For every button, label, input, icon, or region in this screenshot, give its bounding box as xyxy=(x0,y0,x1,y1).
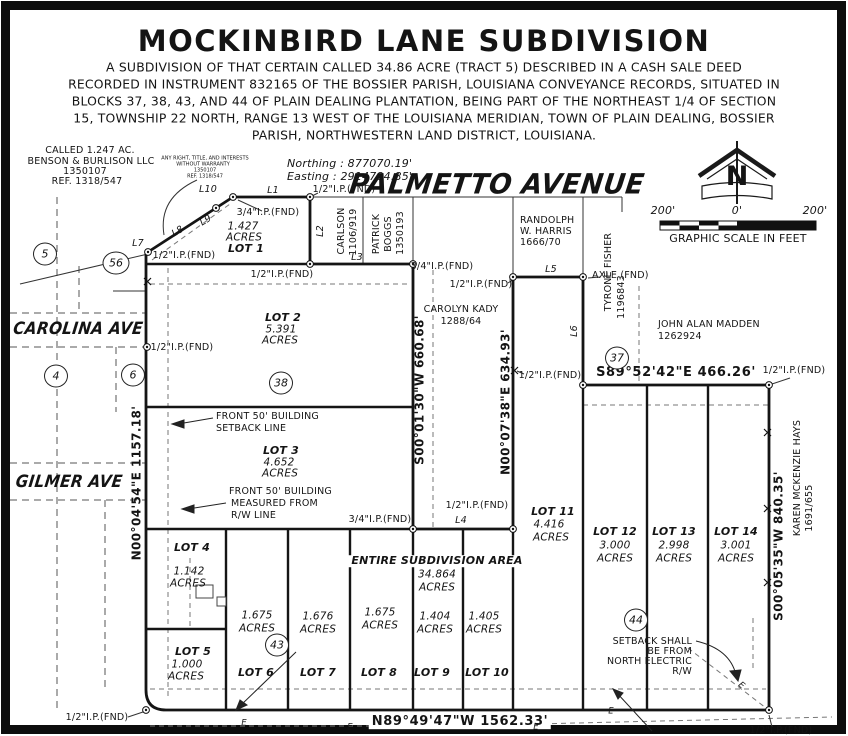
block-number-43: 43 xyxy=(270,639,284,652)
street-palmetto-avenue: PALMETTO AVENUE xyxy=(347,168,646,201)
lot2-label: LOT 2 xyxy=(265,312,301,324)
block-circle-37: 37 xyxy=(605,347,629,370)
electric-marker-e-1: E xyxy=(241,720,247,729)
benson-ref: REF. 1318/547 xyxy=(52,177,123,187)
lot7-acres-word: ACRES xyxy=(300,624,336,635)
plat-sheet: MOCKINBIRD LANE SUBDIVISION A SUBDIVISIO… xyxy=(0,0,848,736)
harris-instrument: 1666/70 xyxy=(520,238,561,248)
lot11-label: LOT 11 xyxy=(531,506,575,518)
hays-instrument: 1691/655 xyxy=(805,484,815,531)
monument-half-ip-sw-corner: 1/2"I.P.(FND) xyxy=(66,713,129,723)
lot8-acres: 1.675 xyxy=(364,607,395,618)
madden-instrument: 1262924 xyxy=(658,332,702,342)
lot13-acres: 2.998 xyxy=(658,540,689,551)
lot4-acres: 1.142 xyxy=(173,566,204,577)
lot12-acres-word: ACRES xyxy=(597,553,633,564)
monument-half-ip-lot11: 1/2"I.P.(FND) xyxy=(519,371,582,381)
setback-rw-note-line-2: MEASURED FROM xyxy=(231,499,318,509)
lot12-acres: 3.000 xyxy=(599,540,630,551)
line-label-l4: L4 xyxy=(455,516,467,526)
monument-three-quarter-ip-l4: 3/4"I.P.(FND) xyxy=(349,515,412,525)
subtitle-line-1: A SUBDIVISION OF THAT CERTAIN CALLED 34.… xyxy=(106,60,742,73)
subtitle-line-4: 15, TOWNSHIP 22 NORTH, RANGE 13 WEST OF … xyxy=(73,111,774,124)
line-label-l2: L2 xyxy=(316,225,326,237)
entire-subdivision-acres-word: ACRES xyxy=(416,582,458,593)
setback-rw-note-line-1: FRONT 50' BUILDING xyxy=(229,487,332,497)
lot4-acres-word: ACRES xyxy=(170,578,206,589)
block-circle-4: 4 xyxy=(44,365,68,388)
lot8-label: LOT 8 xyxy=(361,667,397,679)
lot9-label: LOT 9 xyxy=(414,667,450,679)
block-circle-43: 43 xyxy=(265,634,289,657)
monument-half-ip-lot1-sw: 1/2"I.P.(FND) xyxy=(153,251,216,261)
lot3-label: LOT 3 xyxy=(263,445,299,457)
east-boundary-bearing: S00°05'35"W 840.35' xyxy=(773,471,786,621)
monument-half-ip-carolina: 1/2"I.P.(FND) xyxy=(151,343,214,353)
lot11-acres: 4.416 xyxy=(533,519,564,530)
subtitle-line-2: RECORDED IN INSTRUMENT 832165 OF THE BOS… xyxy=(68,77,780,90)
block-number-5: 5 xyxy=(42,248,49,261)
lot5-acres: 1.000 xyxy=(171,659,202,670)
block-circle-5: 5 xyxy=(33,243,57,266)
lot12-label: LOT 12 xyxy=(593,526,637,538)
entire-subdivision-acres: 34.864 xyxy=(415,569,459,580)
kady-owner-name: CAROLYN KADY xyxy=(424,305,499,315)
hays-owner-name: KAREN MCKENZIE HAYS xyxy=(793,420,803,536)
lot13-label: LOT 13 xyxy=(652,526,696,538)
line-label-l6: L6 xyxy=(570,325,580,337)
monument-half-ip-lot1-s: 1/2"I.P.(FND) xyxy=(251,270,314,280)
boggs-last-name: BOGGS xyxy=(384,216,394,252)
lot8-acres-word: ACRES xyxy=(362,620,398,631)
lot4-label: LOT 4 xyxy=(174,542,210,554)
lot14-label: LOT 14 xyxy=(714,526,758,538)
scale-left-tick: 200' xyxy=(651,205,676,217)
kady-west-bearing: S00°01'30"W 660.68' xyxy=(414,315,427,465)
line-label-l1: L1 xyxy=(267,186,279,196)
block-number-6: 6 xyxy=(130,369,137,382)
monument-half-ip-l4: 1/2"I.P.(FND) xyxy=(446,501,509,511)
benson-called-acreage: CALLED 1.247 AC. xyxy=(45,146,134,156)
lot10-label: LOT 10 xyxy=(465,667,509,679)
kady-instrument: 1288/64 xyxy=(441,317,482,327)
electric-marker-e-4: E xyxy=(608,708,614,717)
carlson-instrument: 1106/919 xyxy=(349,208,359,255)
subtitle-line-5: PARISH, NORTHWESTERN LAND DISTRICT, LOUI… xyxy=(252,128,596,141)
block-number-4: 4 xyxy=(53,370,60,383)
line-label-l5: L5 xyxy=(545,265,557,275)
line-label-l7: L7 xyxy=(132,239,144,249)
madden-owner-name: JOHN ALAN MADDEN xyxy=(658,320,760,330)
west-boundary-bearing: N00°04'54"E 1157.18' xyxy=(131,406,144,561)
lot6-acres: 1.675 xyxy=(241,610,272,621)
fisher-instrument: 1196843 xyxy=(617,275,627,319)
entire-subdivision-title: ENTIRE SUBDIVISION AREA xyxy=(348,555,525,567)
block-number-37: 37 xyxy=(610,352,624,365)
lot3-acres-word: ACRES xyxy=(262,468,298,479)
kady-east-bearing: N00°07'38"E 634.93' xyxy=(500,329,513,475)
lot1-label: LOT 1 xyxy=(228,243,264,255)
lot2-acres-word: ACRES xyxy=(262,335,298,346)
block-number-44: 44 xyxy=(629,614,643,627)
block-circle-38: 38 xyxy=(269,372,293,395)
north-arrow-letter: N xyxy=(726,163,749,191)
monument-three-quarter-ip-lot1: 3/4"I.P.(FND) xyxy=(237,208,300,218)
lot10-acres-word: ACRES xyxy=(466,624,502,635)
lot13-acres-word: ACRES xyxy=(656,553,692,564)
carlson-owner-name: CARLSON xyxy=(337,207,347,254)
scale-caption: GRAPHIC SCALE IN FEET xyxy=(669,233,806,245)
lot5-acres-word: ACRES xyxy=(168,671,204,682)
boggs-instrument: 1350193 xyxy=(396,211,406,255)
block-circle-6: 6 xyxy=(121,364,145,387)
lot9-acres: 1.404 xyxy=(419,611,450,622)
lot7-label: LOT 7 xyxy=(300,667,336,679)
south-boundary-bearing: N89°49'47"W 1562.33' xyxy=(369,715,551,729)
harris-name-line-1: RANDOLPH xyxy=(520,216,574,226)
monument-half-ip-kady-ne: 1/2"I.P.(FND) xyxy=(450,280,513,290)
monument-axle: AXLE (FND) xyxy=(592,271,649,281)
lot14-acres: 3.001 xyxy=(720,540,751,551)
line-label-l10: L10 xyxy=(199,185,217,195)
electric-marker-e-3: E xyxy=(533,724,539,733)
lot14-acres-word: ACRES xyxy=(718,553,754,564)
lot7-acres: 1.676 xyxy=(302,611,333,622)
scale-zero-tick: 0' xyxy=(732,205,742,217)
lot6-acres-word: ACRES xyxy=(239,623,275,634)
electric-marker-e-2: E xyxy=(347,724,353,733)
setback-rw-note-line-3: R/W LINE xyxy=(231,511,276,521)
setback-front-note-line-2: SETBACK LINE xyxy=(216,424,286,434)
harris-name-line-2: W. HARRIS xyxy=(520,227,572,237)
subtitle-line-3: BLOCKS 37, 38, 43, AND 44 OF PLAIN DEALI… xyxy=(72,94,776,107)
block-circle-44: 44 xyxy=(624,609,648,632)
lot9-acres-word: ACRES xyxy=(417,624,453,635)
monument-half-ip-ne-corner: 1/2"I.P.(FND) xyxy=(763,366,826,376)
page-title: MOCKINBIRD LANE SUBDIVISION xyxy=(138,26,711,56)
monument-half-ip-palmetto: 1/2"I.P.(FND) xyxy=(313,185,376,195)
monument-three-quarter-ip-kady: 3/4"I.P.(FND) xyxy=(411,262,474,272)
benson-note-line-4: REF. 1318/547 xyxy=(187,174,223,179)
lot5-label: LOT 5 xyxy=(175,646,211,658)
lot11-acres-word: ACRES xyxy=(533,532,569,543)
setback-electric-note-line-4: R/W xyxy=(672,667,692,677)
street-carolina-ave: CAROLINA AVE xyxy=(12,321,144,339)
setback-front-note-line-1: FRONT 50' BUILDING xyxy=(216,412,319,422)
monument-half-ip-se-corner: 1/2"I.P.(FND) xyxy=(750,726,813,736)
lot10-acres: 1.405 xyxy=(468,611,499,622)
block-circle-56: 56 xyxy=(103,252,130,275)
street-gilmer-ave: GILMER AVE xyxy=(15,474,124,492)
block-number-38: 38 xyxy=(274,377,288,390)
scale-right-tick: 200' xyxy=(803,205,828,217)
line-label-l3: L3 xyxy=(351,253,363,263)
lot6-label: LOT 6 xyxy=(238,667,274,679)
scale-bar xyxy=(660,221,816,230)
block-number-56: 56 xyxy=(109,257,123,270)
street-grid-dashed-lines xyxy=(10,197,146,708)
boggs-first-name: PATRICK xyxy=(372,214,382,254)
